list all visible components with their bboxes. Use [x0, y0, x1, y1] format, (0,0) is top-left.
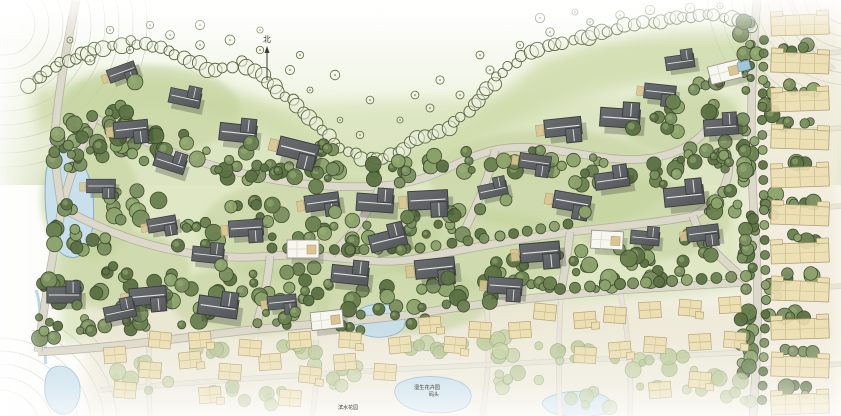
- tan-house: [603, 306, 626, 323]
- north-label: 北: [263, 35, 271, 44]
- site-label-1: 码头: [429, 391, 439, 398]
- site-label-2: 滨水花园: [338, 404, 358, 411]
- site-plan-map: 北湿生花卉园码头滨水花园: [0, 0, 841, 416]
- tan-house: [533, 303, 557, 321]
- tan-house: [573, 311, 599, 331]
- master-plan-image: 北湿生花卉园码头滨水花园: [0, 0, 841, 416]
- tan-house: [718, 296, 741, 313]
- white-villa: [590, 230, 628, 256]
- site-label-0: 湿生花卉园: [414, 383, 440, 391]
- tan-house: [639, 301, 662, 318]
- white-villa: [287, 240, 324, 264]
